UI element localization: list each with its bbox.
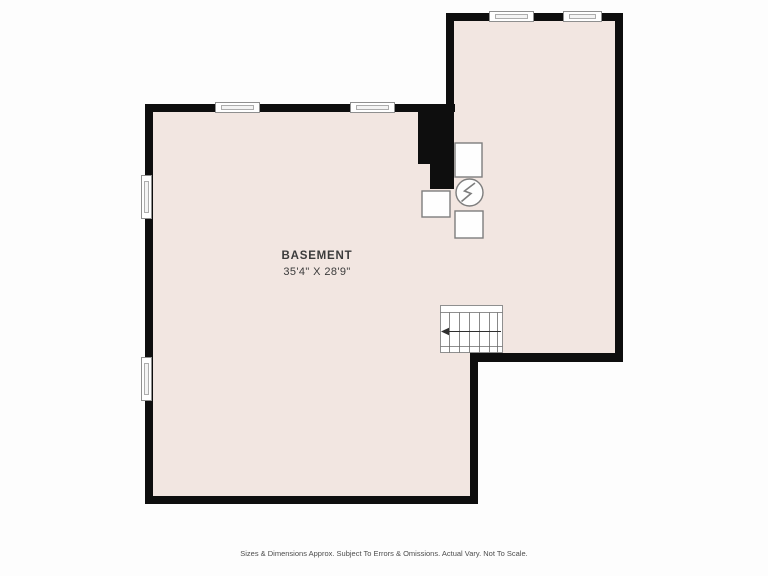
wall-chimney-block	[418, 104, 454, 164]
wall-bottom-main	[145, 496, 478, 504]
window-icon	[351, 103, 395, 113]
disclaimer-text: Sizes & Dimensions Approx. Subject To Er…	[240, 549, 527, 558]
floorplan-page: BASEMENT 35'4" X 28'9" Sizes & Dimension…	[0, 0, 768, 576]
window-icon	[142, 358, 152, 401]
room-dimensions-label: 35'4" X 28'9"	[283, 266, 350, 278]
wall-upper-right	[615, 13, 623, 362]
wall-top-main	[145, 104, 455, 112]
utility-meter-icon	[456, 179, 483, 206]
utility-box-icon	[455, 143, 482, 177]
window-icon	[216, 103, 260, 113]
floor-areas	[149, 17, 619, 500]
wall-right-lower	[470, 353, 478, 504]
room-name-label: BASEMENT	[282, 250, 353, 262]
window-icon	[142, 176, 152, 219]
stairs-icon	[441, 306, 503, 353]
floorplan-canvas: BASEMENT 35'4" X 28'9" Sizes & Dimension…	[0, 0, 768, 576]
wall-chimney-step	[430, 164, 454, 189]
wall-left	[145, 104, 153, 504]
utility-box-icon	[455, 211, 483, 238]
window-icon	[564, 12, 602, 22]
wall-upper-bottom	[470, 353, 623, 362]
utility-box-icon	[422, 191, 450, 217]
window-icon	[490, 12, 534, 22]
main-room-floor	[149, 108, 474, 500]
